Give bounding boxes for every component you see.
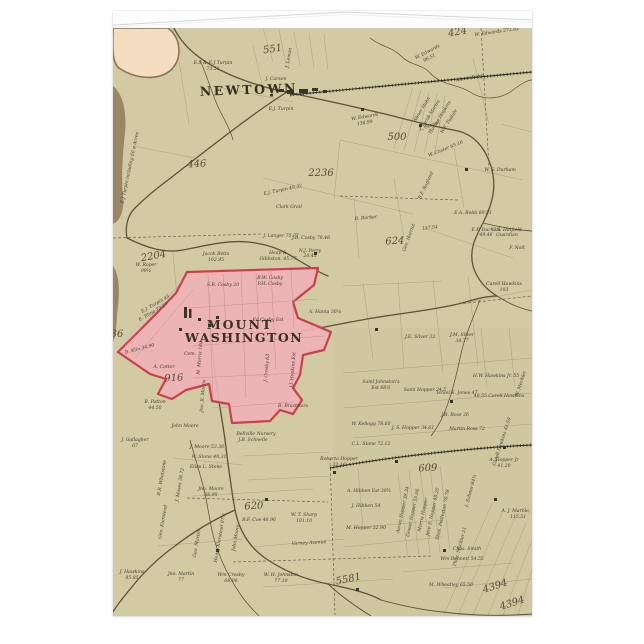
parcel-label: 101.10 xyxy=(296,518,312,524)
parcel-label: A. J. Marble, xyxy=(501,508,531,514)
parcel-label: E.J. Turpin xyxy=(268,106,294,112)
parcel-label: A. Hibben Est 30¾ xyxy=(346,487,391,494)
parcel-label: 102.95 xyxy=(208,257,224,263)
parcel-label: 32.16 xyxy=(332,462,345,468)
parcel-label: J.M. Silver xyxy=(449,332,475,338)
district-number: 916 xyxy=(164,372,184,384)
parcel-label: J. Hibben 54 xyxy=(351,503,381,509)
parcel-label: J. Gallagher xyxy=(120,437,149,443)
parcel-label: 49.46 xyxy=(478,232,492,238)
district-number: 500 xyxy=(387,132,407,143)
parcel-label: Wm Crosby xyxy=(218,572,245,578)
district-number: 36 xyxy=(113,329,124,340)
parcel-label: 67 xyxy=(132,443,138,449)
pond xyxy=(113,28,179,77)
district-number: 2236 xyxy=(307,168,334,179)
parcel-label: Roberta Hopper xyxy=(319,456,358,462)
parcel-label: 85.85 xyxy=(125,575,138,581)
parcel-label: B. Patton xyxy=(143,399,165,405)
parcel-label: Guardian xyxy=(496,232,518,238)
parcel-label: A. Cotter xyxy=(152,364,175,370)
parcel-label: 38.77 xyxy=(455,338,468,344)
parcel-label: H.W. Hawkins Jr. 55 xyxy=(472,373,519,379)
parcel-label: E.A. Robb 69.51 xyxy=(453,210,492,216)
parcel-label: W. Stone 48.31 xyxy=(192,454,227,460)
parcel-label: 77 xyxy=(178,577,184,583)
parcel-label: W. T. Sharp xyxy=(291,512,317,518)
parcel-label: Est 68½ xyxy=(370,384,390,391)
parcel-label: A. Hanta 30¼ xyxy=(308,308,341,315)
parcel-label: Israel E. Jones 47 xyxy=(436,390,478,396)
parcel-label: Martin Ross 72 xyxy=(448,426,485,432)
parcel-label: 44.50 xyxy=(147,405,161,411)
district-number: 620 xyxy=(244,500,264,512)
parcel-label: W. H. Johnston xyxy=(264,572,298,578)
parcel-label: B. Brashears xyxy=(277,403,309,409)
parcel-label: 26.45 xyxy=(302,253,316,259)
parcel-label: B.F. Coe 48.96 xyxy=(241,517,276,523)
parcel-label: Bellville Nursery xyxy=(235,431,276,437)
parcel-label: 66.95 xyxy=(204,492,217,498)
parcel-label: B.W. Cosby xyxy=(256,275,283,281)
parcel-label: J. Moore 53.36 xyxy=(189,444,224,450)
parcel-label: Carell Hawkins xyxy=(486,281,522,287)
parcel-label: Jno. Martin xyxy=(167,571,194,577)
parcel-label: S.B. Cosby 20 xyxy=(207,282,239,288)
parcel-label: Clark Grail xyxy=(276,204,302,210)
parcel-label: P.H. Cosby xyxy=(257,281,283,287)
parcel-label: Jno. Moore xyxy=(197,486,224,492)
parcel-label: Jacob Betts xyxy=(202,251,230,257)
card-fold xyxy=(113,11,532,29)
parcel-label: Heap & xyxy=(268,250,287,256)
parcel-label: John Moore xyxy=(170,423,198,429)
page: { "colors": { "page_bg": "#ffffff", "car… xyxy=(0,0,644,644)
district-number: 609 xyxy=(418,462,438,474)
parcel-label: J.E. Silver 33 xyxy=(404,334,435,340)
parcel-label: J.B. Schnelle xyxy=(237,437,268,443)
card-fold-face xyxy=(113,12,532,29)
parcel-label: F. Nolt xyxy=(508,245,525,251)
parcel-label: 66.06 xyxy=(224,578,237,584)
parcel-label: Elias L. Stone xyxy=(189,464,223,470)
parcel-label: C.L. Stone 72.12 xyxy=(352,441,391,447)
town-label: WASHINGTON xyxy=(184,330,303,345)
parcel-label: J.B. Cosby 78.46 xyxy=(291,235,330,241)
district-number: 446 xyxy=(186,158,207,170)
parcel-label: Cem. xyxy=(184,351,197,357)
parcel-label: M. Hopper 32.90 xyxy=(345,525,386,531)
parcel-label: 41.20 xyxy=(496,463,510,469)
parcel-label: A. Hopper Jr xyxy=(488,457,519,463)
parcel-label: 115.51 xyxy=(510,514,526,520)
parcel-label: 73.51 xyxy=(206,66,219,72)
parcel-label: M. Wheatley 65.50 xyxy=(428,582,473,588)
parcel-label: 99½ xyxy=(141,267,151,274)
parcel-label: Saml Johnston's xyxy=(362,379,400,385)
parcel-label: Chas. Smith xyxy=(453,546,481,552)
parcel-label: 77.10 xyxy=(274,578,287,584)
greeting-card: E.S & E.J Turpin73.51J. LemonJ. CarsonW.… xyxy=(113,11,532,616)
parcel-label: W. S. Durham xyxy=(484,167,516,173)
district-number: 624 xyxy=(385,236,405,248)
parcel-label: J. S. Hopper 34.61 xyxy=(391,425,435,431)
parcel-label: J. Hawkins xyxy=(119,569,145,575)
parcel-label: W. Kellogg 78.60 xyxy=(351,421,390,427)
map: E.S & E.J Turpin73.51J. LemonJ. CarsonW.… xyxy=(113,28,532,616)
parcel-label: Gibbston. 45.77 xyxy=(259,256,296,262)
parcel-label: J.B. Rose 26 xyxy=(440,412,469,418)
parcel-label: Wm Bennett 54.55 xyxy=(440,556,484,562)
parcel-label: 103 xyxy=(500,287,509,293)
parcel-label: E.S & E.J Turpin xyxy=(193,60,233,66)
